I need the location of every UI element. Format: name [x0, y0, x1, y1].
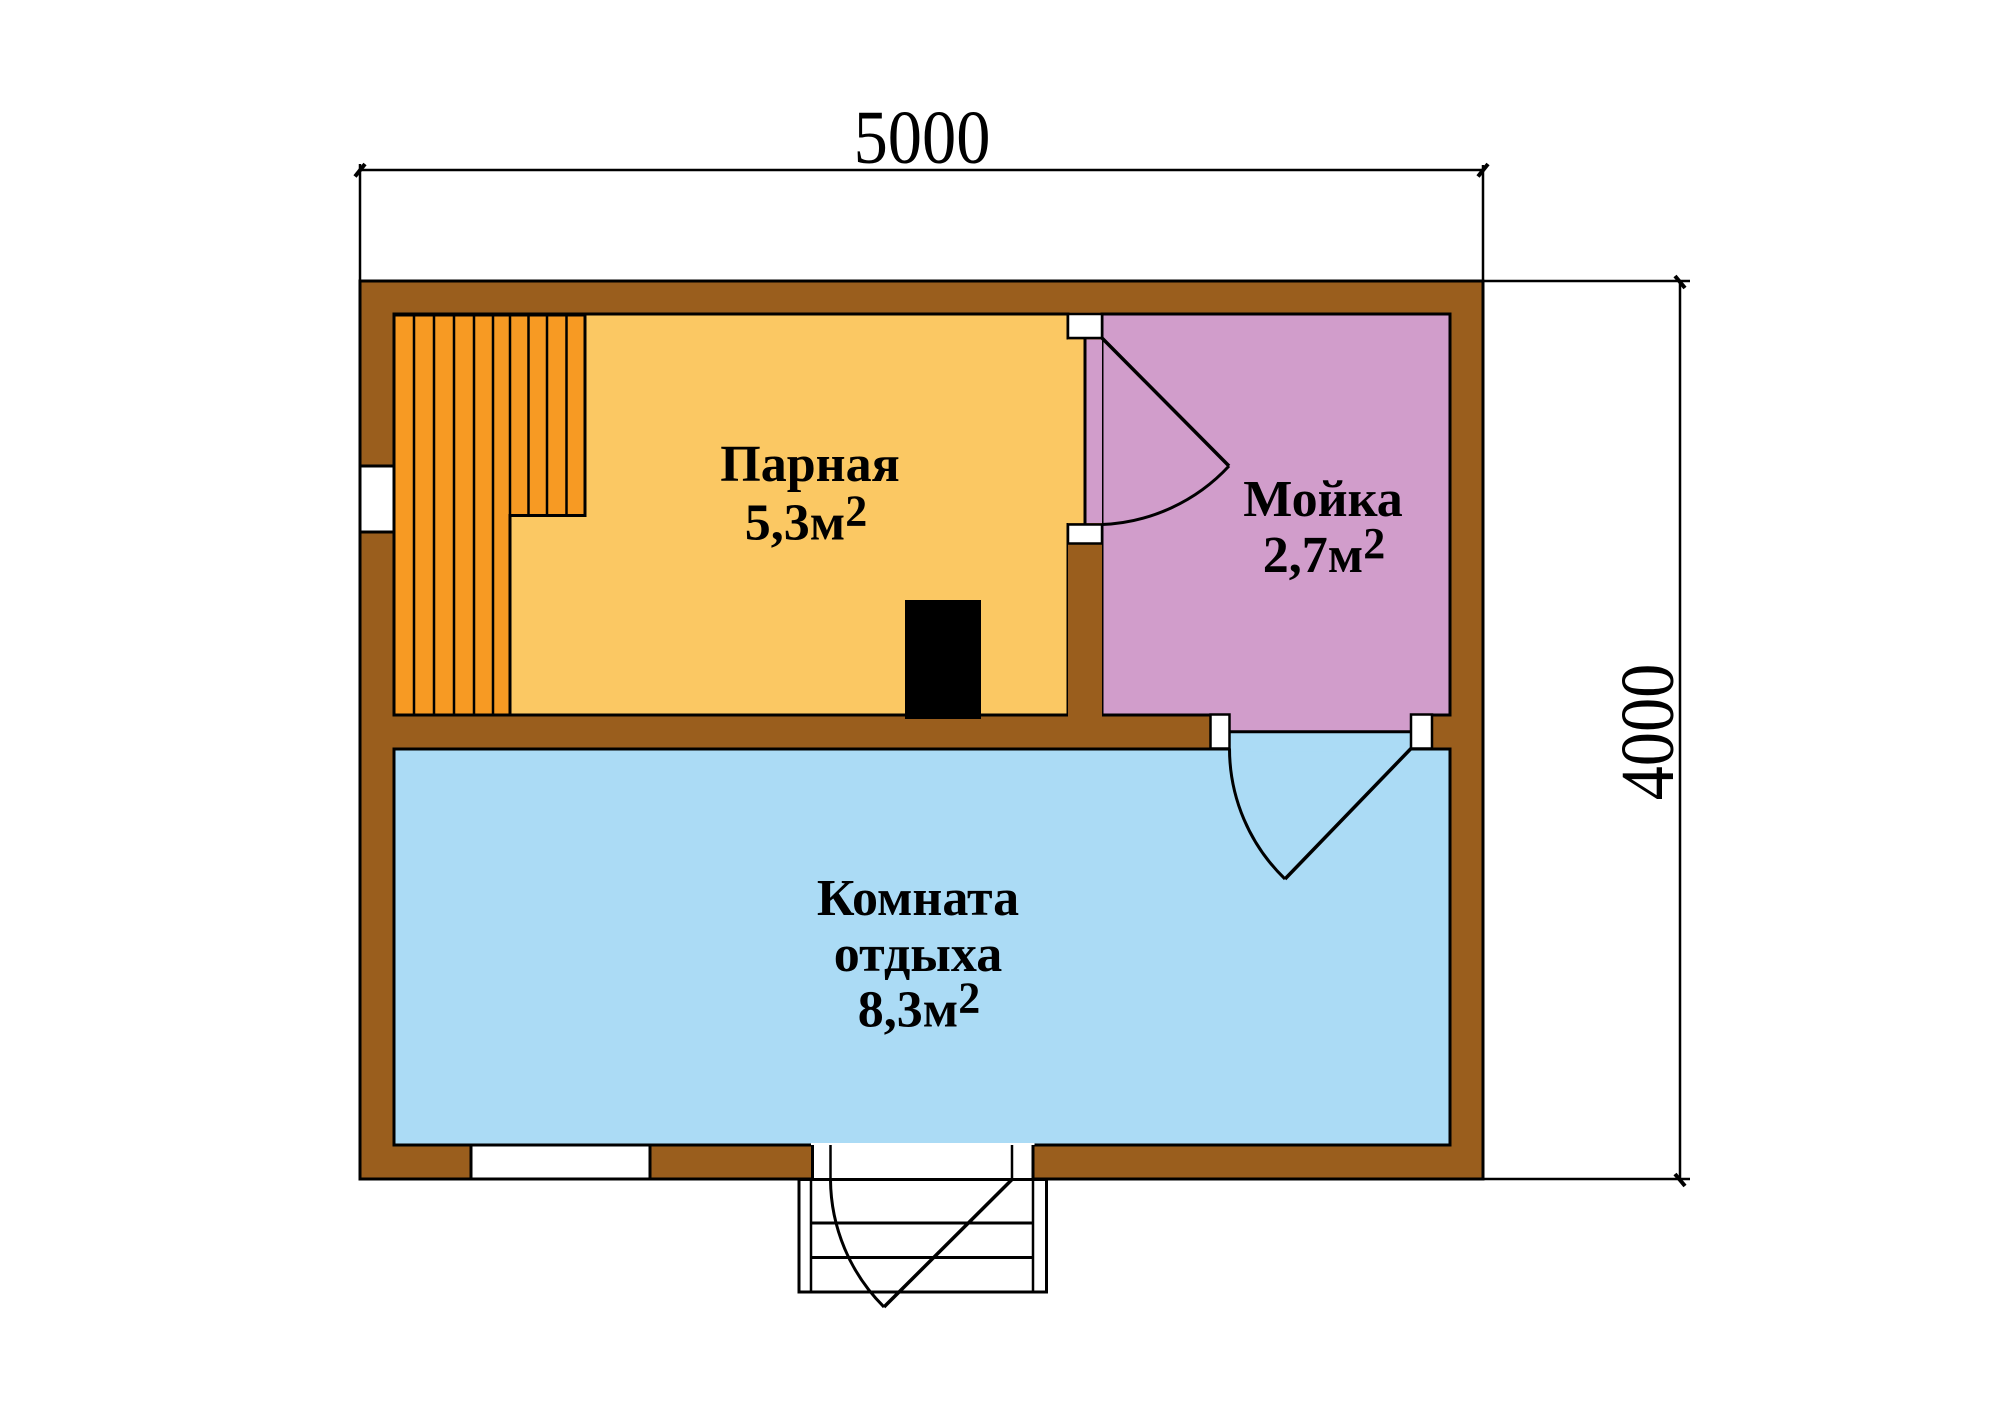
- svg-text:5000: 5000: [854, 96, 991, 180]
- svg-text:Парная: Парная: [720, 436, 899, 493]
- svg-text:Комната: Комната: [817, 870, 1019, 927]
- svg-text:4000: 4000: [1606, 664, 1690, 801]
